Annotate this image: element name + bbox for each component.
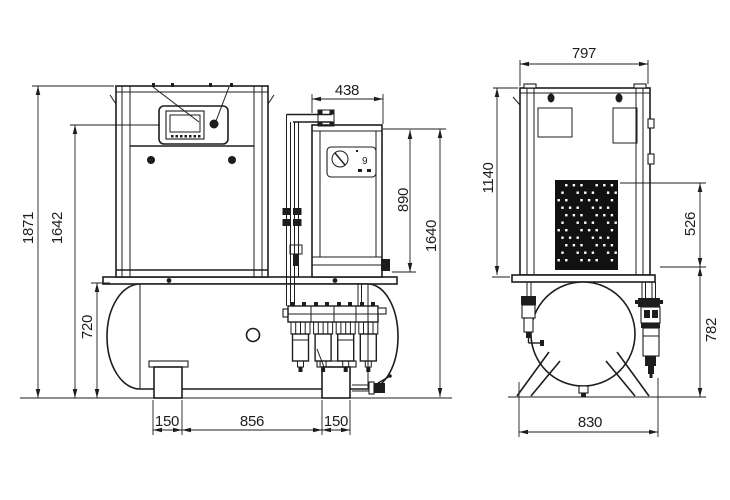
dim-dryer-width: 438 [312, 82, 383, 124]
dim-label-438: 438 [335, 82, 359, 99]
tank-frame [103, 277, 397, 284]
dim-tank-top-height: 782 [662, 267, 720, 397]
dim-label-797: 797 [572, 45, 596, 62]
right-latch-mark [268, 95, 274, 104]
dim-label-890: 890 [395, 188, 412, 212]
dim-cabinet-height: 1140 [480, 88, 518, 277]
pipe-clamp [318, 110, 334, 126]
panel-bolt [228, 156, 236, 164]
lifting-eye [548, 94, 555, 103]
dim-overall-height: 1871 [20, 86, 114, 398]
side-frame [512, 275, 655, 282]
dim-label-1642: 1642 [49, 212, 66, 244]
dryer-display-digit: 9 [362, 156, 368, 167]
dim-label-150-right: 150 [324, 413, 348, 430]
dim-tank-height: 720 [79, 283, 110, 398]
dimension-drawing-page: 9 [0, 0, 730, 500]
panel-bolt [147, 156, 155, 164]
pipe-valve [290, 245, 302, 254]
left-latch-mark [110, 95, 116, 104]
hinge [648, 119, 654, 128]
start-button [210, 120, 219, 129]
tank-port [247, 329, 260, 342]
dryer-control-panel: 9 [327, 147, 376, 177]
dryer-unit: 9 [312, 125, 390, 277]
lifting-eye [616, 94, 623, 103]
dim-label-856: 856 [240, 413, 264, 430]
hinge [648, 154, 654, 164]
side-right-filter [635, 282, 663, 378]
dim-label-1140: 1140 [480, 162, 497, 193]
dim-cabinet-width: 797 [520, 45, 648, 86]
dim-label-830: 830 [578, 414, 602, 431]
dim-label-526: 526 [682, 212, 699, 236]
dim-label-1871: 1871 [20, 212, 37, 244]
front-view: 9 [20, 82, 452, 435]
dim-label-782: 782 [703, 318, 720, 342]
dim-dryer-top-height: 1640 [423, 129, 440, 397]
side-tank [517, 282, 649, 397]
dim-label-720: 720 [79, 315, 96, 339]
dryer-outlet-fitting [381, 259, 390, 271]
compressor-dimension-drawing: 9 [0, 0, 730, 500]
dim-label-1640: 1640 [423, 220, 440, 252]
dim-label-150-left: 150 [155, 413, 179, 430]
